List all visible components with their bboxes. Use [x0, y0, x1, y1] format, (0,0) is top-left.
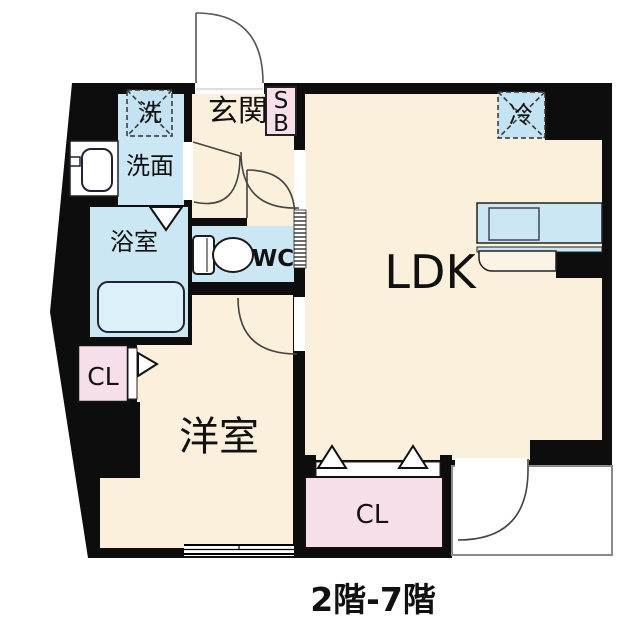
pipe-space-hatch: [294, 210, 306, 268]
entrance-door-arc: [196, 13, 263, 83]
kitchen-lower-cabinet: [479, 251, 556, 271]
label-closet-bottom: CL: [356, 500, 389, 530]
wc-door-opening: [247, 218, 294, 227]
sink-tap-icon: [70, 157, 80, 166]
label-shoe-box-b: B: [273, 111, 289, 137]
ldk-door-opening: [294, 150, 306, 210]
wall-right-of-counter: [556, 250, 602, 278]
label-bedroom: 洋室: [179, 414, 259, 460]
bedroom-floor-ext3: [100, 478, 192, 548]
label-washroom: 洗面: [126, 152, 174, 180]
wall-cl-left-chunk: [293, 455, 316, 478]
label-fridge: 冷: [509, 101, 533, 129]
label-bathroom: 浴室: [110, 228, 158, 256]
closet-left-door: [128, 348, 137, 399]
floor-plan-drawing: 玄関 S B 洗 洗面 浴室 WC LDK 冷 CL CL 洋室 2階-7階: [0, 0, 640, 624]
label-floor-range: 2階-7階: [310, 580, 436, 619]
label-entrance: 玄関: [208, 94, 268, 129]
washroom-door-opening: [183, 142, 193, 200]
sink-bowl-icon: [82, 149, 112, 191]
bathtub-icon: [98, 282, 184, 332]
label-closet-left: CL: [87, 362, 118, 391]
balcony-door-opening: [455, 458, 529, 470]
label-ldk: LDK: [384, 245, 477, 299]
wall-ldk-bottom-right: [530, 440, 602, 468]
floor-plan: 玄関 S B 洗 洗面 浴室 WC LDK 冷 CL CL 洋室 2階-7階: [0, 0, 640, 624]
toilet-icon: [193, 236, 253, 274]
wall-top-right-block: [545, 94, 602, 140]
balcony: [452, 466, 612, 555]
bedroom-floor-ext1: [137, 345, 192, 402]
label-toilet: WC: [252, 246, 294, 272]
bedroom-window: [184, 544, 294, 556]
label-washer: 洗: [138, 99, 162, 127]
bedroom-door-opening: [294, 297, 305, 351]
